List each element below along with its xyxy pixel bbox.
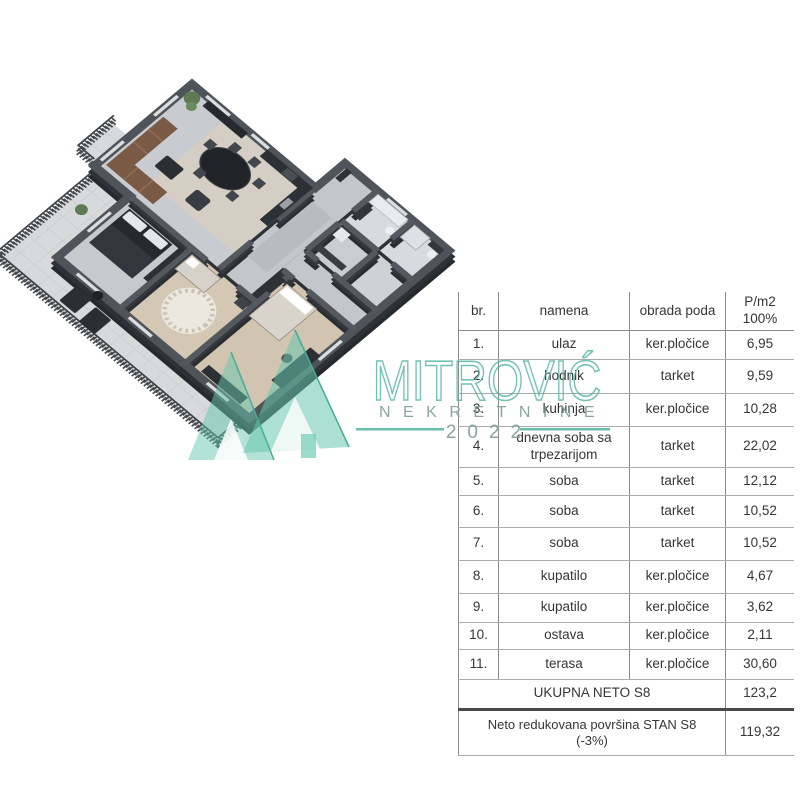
reduced-label: Neto redukovana površina STAN S8 (-3%) (459, 709, 726, 755)
watermark-logo-icon (188, 330, 349, 460)
entry-console (335, 168, 352, 182)
table-row: 10. ostava ker.pločice 2,11 (459, 622, 795, 649)
coffee-table (154, 155, 184, 180)
room-floors (24, 62, 446, 417)
hall-runner (247, 201, 332, 272)
single-bed (249, 284, 317, 341)
kitchen-counter (260, 150, 313, 195)
watermark-rule-left (356, 428, 444, 431)
col-header-pm2: P/m2 100% (726, 292, 795, 330)
plant (180, 88, 203, 108)
exterior-wall-tops (22, 59, 449, 418)
terrace-plant (72, 202, 90, 217)
lounge-chair-2 (79, 307, 112, 334)
shower (400, 225, 430, 250)
dining-table (190, 139, 260, 198)
bathroom-fixtures (314, 194, 444, 303)
table-row: 3. kuhinja ker.pločice 10,28 (459, 393, 795, 426)
lounge-chair (59, 286, 92, 313)
bedroom1-furniture (89, 207, 183, 286)
terrace-railing (0, 115, 358, 437)
bathtub (369, 194, 408, 227)
desk (271, 347, 320, 389)
table-header-row: br. namena obrada poda P/m2 100% (459, 292, 795, 330)
sofa (106, 117, 210, 204)
bed-dark (89, 209, 172, 279)
listing-image: br. namena obrada poda P/m2 100% 1. ulaz… (0, 0, 800, 800)
bedroom2-furniture (137, 254, 250, 349)
table-row: 6. soba tarket 10,52 (459, 495, 795, 527)
table-row: 5. soba tarket 12,12 (459, 467, 795, 495)
armchair (184, 189, 211, 212)
bedroom3-furniture (192, 284, 347, 414)
desk-chair (279, 352, 295, 365)
toilet (383, 225, 396, 236)
dining-chairs (181, 129, 277, 209)
total-label: UKUPNA NETO S8 (459, 679, 726, 709)
interior-wall-tops (57, 89, 449, 418)
wardrobe-2 (201, 365, 248, 404)
table-total-row: UKUPNA NETO S8 123,2 (459, 679, 795, 709)
table-reduced-row: Neto redukovana površina STAN S8 (-3%) 1… (459, 709, 795, 755)
total-value: 123,2 (726, 679, 795, 709)
table-row: 2. hodnik tarket 9,59 (459, 359, 795, 393)
sink (279, 198, 293, 210)
washing-machine (333, 227, 351, 242)
table-row: 7. soba tarket 10,52 (459, 527, 795, 560)
vanity (353, 204, 373, 220)
col-header-obrada: obrada poda (630, 292, 726, 330)
col-header-br: br. (459, 292, 499, 330)
kids-bed (175, 254, 221, 292)
exterior-wall-sides (22, 70, 449, 429)
side-table (90, 289, 106, 302)
living-room-furniture (104, 87, 287, 241)
reduced-value: 119,32 (726, 709, 795, 755)
room-spec-table: br. namena obrada poda P/m2 100% 1. ulaz… (458, 292, 794, 756)
terrace-floor (0, 123, 357, 444)
storage-shelf (316, 245, 347, 271)
toilet-2 (425, 249, 438, 260)
table-row: 1. ulaz ker.pločice 6,95 (459, 330, 795, 359)
toy-box (234, 296, 251, 310)
vanity-2 (427, 240, 444, 254)
table-row: 9. kupatilo ker.pločice 3,62 (459, 593, 795, 622)
kitchen-furniture (222, 150, 313, 227)
tv-unit (202, 100, 248, 138)
terrace-furniture (9, 202, 166, 334)
table-row: 11. terasa ker.pločice 30,60 (459, 649, 795, 679)
table-row: 4. dnevna soba sa trpezarijom tarket 22,… (459, 426, 795, 467)
round-rug (150, 278, 228, 344)
cooktop (281, 168, 298, 182)
windows (22, 59, 449, 418)
table-row: 8. kupatilo ker.pločice 4,67 (459, 560, 795, 593)
wardrobe (143, 248, 183, 282)
col-header-namena: namena (499, 292, 630, 330)
interior-wall-sides (57, 97, 449, 426)
